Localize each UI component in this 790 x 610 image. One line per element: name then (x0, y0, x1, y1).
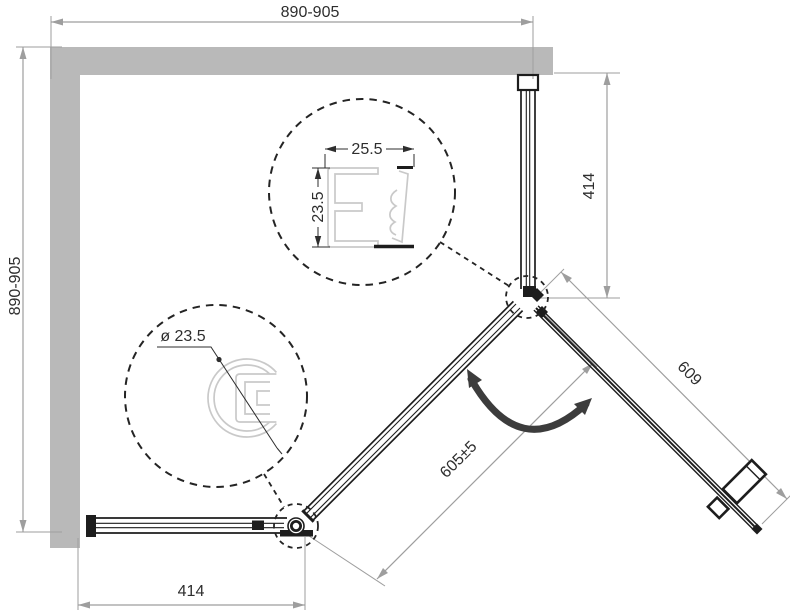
technical-drawing: 890-905 890-905 414 414 609 605±5 25.5 2… (0, 0, 790, 610)
door-swing-arrow (467, 369, 592, 429)
fixed-panel-diagonal (302, 301, 522, 521)
left-wall (50, 47, 80, 548)
dim-text-bottom-panel: 414 (178, 583, 205, 600)
callout-leader-top (440, 242, 509, 286)
dim-text-door-length: 609 (674, 358, 705, 389)
detail-wall-profile (269, 99, 455, 285)
detail-circle-wall-profile (269, 99, 455, 285)
detail-corner-post (125, 305, 307, 487)
detail-circle-corner-post (125, 305, 307, 487)
post-channel-tongue (257, 391, 270, 405)
dim-text-entry-opening: 605±5 (437, 438, 480, 481)
dim-text-post-diameter: ø 23.5 (160, 328, 205, 345)
callout-leader-bottom (264, 474, 284, 507)
top-wall (50, 47, 553, 75)
dim-text-right-panel: 414 (581, 173, 598, 200)
drawing-canvas: 890-905 890-905 414 414 609 605±5 25.5 2… (0, 0, 790, 610)
dimension-entry-opening (303, 311, 597, 586)
dim-text-left-depth: 890-905 (7, 257, 24, 316)
post-inner-ring (214, 365, 270, 431)
leader-dot (216, 357, 221, 362)
wall-profile-section (328, 168, 378, 247)
hinge-bottom (280, 518, 313, 537)
dim-text-profile-width: 25.5 (351, 141, 382, 158)
door-handle (706, 460, 765, 519)
fixed-panel-bottom (86, 515, 287, 537)
dimension-right-panel (539, 73, 620, 298)
dim-text-top-width: 890-905 (281, 4, 340, 21)
fixed-panel-right (518, 75, 538, 289)
seal-profile-detail (390, 190, 397, 235)
hinge-top (523, 286, 544, 302)
dim-text-profile-depth: 23.5 (310, 191, 327, 222)
